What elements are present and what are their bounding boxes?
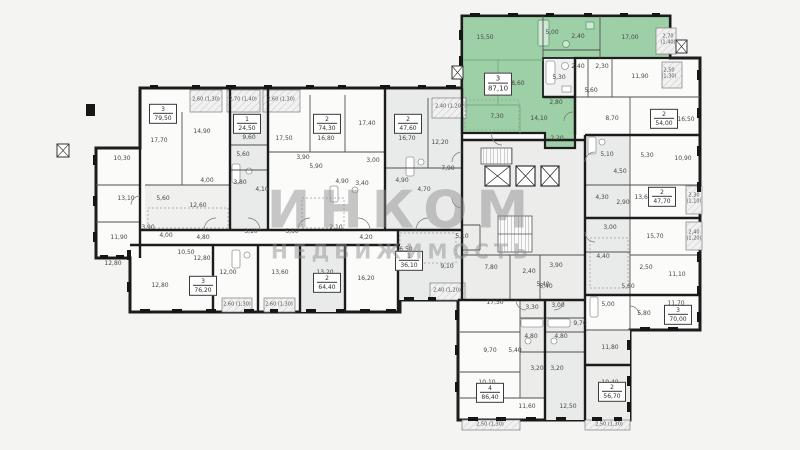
room-area-label: 3,90: [296, 155, 309, 161]
room-area-label: 14,10: [530, 116, 547, 122]
room-area-label: 10,90: [674, 156, 691, 162]
room-area-label: 3,20: [530, 366, 543, 372]
room-area-label: 16,20: [357, 276, 374, 282]
unit-label[interactable]: 274,30: [313, 114, 341, 134]
unit-label[interactable]: 370,00: [664, 305, 692, 325]
room-area-label: 4,40: [596, 254, 609, 260]
room-area-label: 16,80: [317, 136, 334, 142]
room-area-label: 9,70: [483, 348, 496, 354]
room-area-label: 3,90: [141, 225, 154, 231]
room-area-label: 3,30: [525, 305, 538, 311]
room-area-label: 12,00: [219, 270, 236, 276]
room-area-label: 17,00: [621, 35, 638, 41]
balcony-area-label: 2,50 (1,30): [476, 423, 504, 428]
room-area-label: 4,00: [159, 233, 172, 239]
room-area-label: 4,20: [359, 235, 372, 241]
balcony-area-label: 2,70(1,40): [660, 34, 675, 46]
room-area-label: 3,40: [355, 181, 368, 187]
room-area-label: 11,10: [668, 272, 685, 278]
unit-label[interactable]: 247,70: [648, 187, 676, 207]
room-area-label: 5,60: [156, 196, 169, 202]
room-area-label: 15,70: [646, 234, 663, 240]
room-area-label: 9,10: [440, 264, 453, 270]
room-area-label: 3,00: [366, 158, 379, 164]
room-area-label: 2,90: [616, 200, 629, 206]
room-area-label: 5,60: [621, 284, 634, 290]
room-area-label: 4,70: [417, 187, 430, 193]
room-area-label: 3,10: [244, 229, 257, 235]
room-area-label: 3,80: [233, 180, 246, 186]
balcony-area-label: 2,40 (1,20): [433, 289, 461, 294]
room-area-label: 12,60: [189, 203, 206, 209]
room-area-label: 4,10: [255, 187, 268, 193]
unit-label[interactable]: 379,50: [149, 104, 177, 124]
room-area-label: 10,30: [113, 156, 130, 162]
room-area-label: 5,30: [640, 153, 653, 159]
balcony-area-label: 2,40(1,20): [686, 230, 701, 242]
balcony-area-label: 2,60 (1,30): [265, 303, 293, 308]
unit-label[interactable]: 124,50: [233, 114, 261, 134]
room-area-label: 5,60: [236, 152, 249, 158]
room-area-label: 2,40: [522, 269, 535, 275]
room-area-label: 4,80: [554, 334, 567, 340]
room-area-label: 10,50: [177, 250, 194, 256]
room-area-label: 7,30: [490, 114, 503, 120]
room-area-label: 9,60: [242, 135, 255, 141]
room-area-label: 5,10: [455, 234, 468, 240]
room-area-label: 4,80: [524, 334, 537, 340]
room-area-label: 5,10: [600, 152, 613, 158]
room-area-label: 2,20: [550, 136, 563, 142]
balcony-area-label: 2,50(1,30): [661, 68, 676, 80]
room-area-label: 12,20: [431, 140, 448, 146]
room-area-label: 16,50: [677, 117, 694, 123]
labels-layer: 10,3013,1011,9012,8017,7014,905,604,0012…: [0, 0, 800, 450]
room-area-label: 3,90: [549, 263, 562, 269]
room-area-label: 9,70: [573, 321, 586, 327]
room-area-label: 5,40: [536, 282, 549, 288]
room-area-label: 5,30: [552, 75, 565, 81]
room-area-label: 11,90: [110, 235, 127, 241]
room-area-label: 4,80: [196, 235, 209, 241]
balcony-area-label: 2,50 (1,30): [595, 423, 623, 428]
room-area-label: 17,50: [486, 300, 503, 306]
room-area-label: 5,60: [584, 88, 597, 94]
balcony-area-label: 2,40 (1,20): [435, 105, 463, 110]
balcony-area-label: 2,70 (1,40): [229, 98, 257, 103]
room-area-label: 17,70: [150, 138, 167, 144]
room-area-label: 3,00: [551, 303, 564, 309]
room-area-label: 7,80: [484, 265, 497, 271]
room-area-label: 3,00: [603, 225, 616, 231]
unit-label[interactable]: 486,40: [476, 383, 504, 403]
unit-label[interactable]: 247,60: [394, 114, 422, 134]
room-area-label: 5,40: [508, 348, 521, 354]
balcony-area-label: 2,60 (1,30): [192, 98, 220, 103]
room-area-label: 2,40: [571, 34, 584, 40]
room-area-label: 12,80: [104, 261, 121, 267]
room-area-label: 11,90: [631, 74, 648, 80]
room-area-label: 14,90: [193, 129, 210, 135]
room-area-label: 5,00: [601, 302, 614, 308]
room-area-label: 4,90: [335, 179, 348, 185]
room-area-label: 8,70: [605, 116, 618, 122]
room-area-label: 4,50: [613, 169, 626, 175]
floorplan-canvas: 10,3013,1011,9012,8017,7014,905,604,0012…: [0, 0, 800, 450]
room-area-label: 3,20: [550, 366, 563, 372]
room-area-label: 5,00: [545, 30, 558, 36]
room-area-label: 17,50: [275, 136, 292, 142]
unit-label[interactable]: 256,70: [598, 382, 626, 402]
room-area-label: 4,30: [595, 195, 608, 201]
room-area-label: 5,80: [637, 311, 650, 317]
room-area-label: 11,80: [601, 345, 618, 351]
room-area-label: 2,40: [571, 64, 584, 70]
room-area-label: 2,10: [329, 225, 342, 231]
room-area-label: 12,80: [151, 283, 168, 289]
room-area-label: 13,60: [271, 270, 288, 276]
room-area-label: 12,80: [193, 256, 210, 262]
unit-label[interactable]: 254,00: [650, 109, 678, 129]
unit-label[interactable]: 136,10: [395, 251, 423, 271]
balcony-area-label: 2,30(1,10): [686, 193, 701, 205]
room-area-label: 16,70: [398, 136, 415, 142]
room-area-label: 2,30: [595, 64, 608, 70]
room-area-label: 15,50: [476, 35, 493, 41]
room-area-label: 4,00: [200, 178, 213, 184]
room-area-label: 2,80: [549, 100, 562, 106]
room-area-label: 12,50: [559, 404, 576, 410]
room-area-label: 7,90: [441, 166, 454, 172]
room-area-label: 2,50: [639, 265, 652, 271]
room-area-label: 5,60: [285, 229, 298, 235]
balcony-area-label: 2,60 (1,30): [223, 303, 251, 308]
unit-label[interactable]: 387,10: [484, 73, 512, 96]
room-area-label: 17,40: [358, 121, 375, 127]
unit-label[interactable]: 264,40: [313, 273, 341, 293]
unit-label[interactable]: 376,20: [189, 276, 217, 296]
balcony-area-label: 2,60 (1,30): [267, 98, 295, 103]
room-area-label: 11,60: [518, 404, 535, 410]
room-area-label: 4,90: [395, 178, 408, 184]
room-area-label: 5,90: [309, 164, 322, 170]
room-area-label: 13,10: [117, 196, 134, 202]
